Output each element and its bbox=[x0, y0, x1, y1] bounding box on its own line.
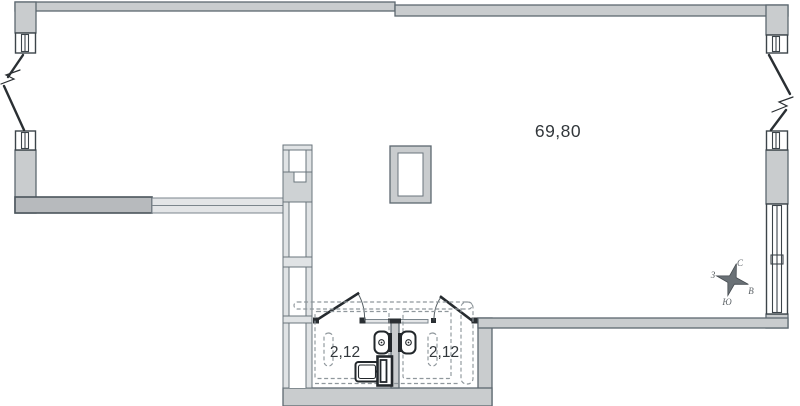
vent-column-inner bbox=[398, 153, 423, 196]
wall-break-left bbox=[1, 55, 24, 130]
bottom-left-bearing-wall bbox=[15, 197, 152, 213]
bathroom-left-area-label: 2,12 bbox=[330, 344, 360, 361]
left-wall-upper bbox=[15, 2, 36, 33]
compass-south-label: Ю bbox=[721, 297, 732, 307]
window-left-upper bbox=[16, 33, 36, 53]
installation-shaft bbox=[378, 357, 393, 386]
shaft-pier bbox=[283, 145, 312, 388]
toilet-right bbox=[398, 332, 416, 354]
compass-north-label: С bbox=[737, 258, 744, 268]
right-wall-upper bbox=[766, 5, 788, 35]
vent-column bbox=[390, 146, 431, 203]
compass-star bbox=[712, 259, 752, 299]
top-wall-right bbox=[395, 5, 788, 16]
bathroom-right-area-label: 2,12 bbox=[429, 344, 459, 361]
right-wall-middle bbox=[766, 150, 788, 204]
fixtures bbox=[356, 332, 416, 386]
floor-plan-drawing: С З В Ю 69,80 2,12 2,12 bbox=[0, 0, 800, 406]
washbasin bbox=[356, 362, 380, 382]
window-right-lower bbox=[767, 131, 788, 150]
window-right-long bbox=[767, 204, 788, 314]
bottom-right-wall bbox=[478, 318, 788, 328]
top-wall-left bbox=[15, 2, 395, 11]
compass-east-label: В bbox=[748, 286, 754, 296]
wall-break-right bbox=[769, 55, 793, 130]
bottom-wall bbox=[283, 388, 492, 406]
window-right-upper bbox=[767, 35, 788, 53]
window-left-lower bbox=[16, 131, 36, 150]
shaft-top-cap bbox=[283, 145, 312, 150]
toilet-left bbox=[375, 332, 393, 354]
shaft-divider-lower bbox=[283, 316, 312, 323]
shaft-notch bbox=[294, 172, 306, 182]
compass-west-label: З bbox=[711, 270, 716, 280]
door-right bbox=[434, 297, 472, 321]
main-room-area-label: 69,80 bbox=[535, 121, 581, 141]
partition-top-jamb bbox=[388, 319, 401, 324]
door-left bbox=[316, 294, 365, 321]
shaft-divider-upper bbox=[283, 257, 312, 267]
planned-wall-horizontal bbox=[294, 302, 472, 309]
compass-rose: С З В Ю bbox=[711, 258, 754, 307]
floor-plan-canvas: С З В Ю 69,80 2,12 2,12 bbox=[0, 0, 800, 406]
